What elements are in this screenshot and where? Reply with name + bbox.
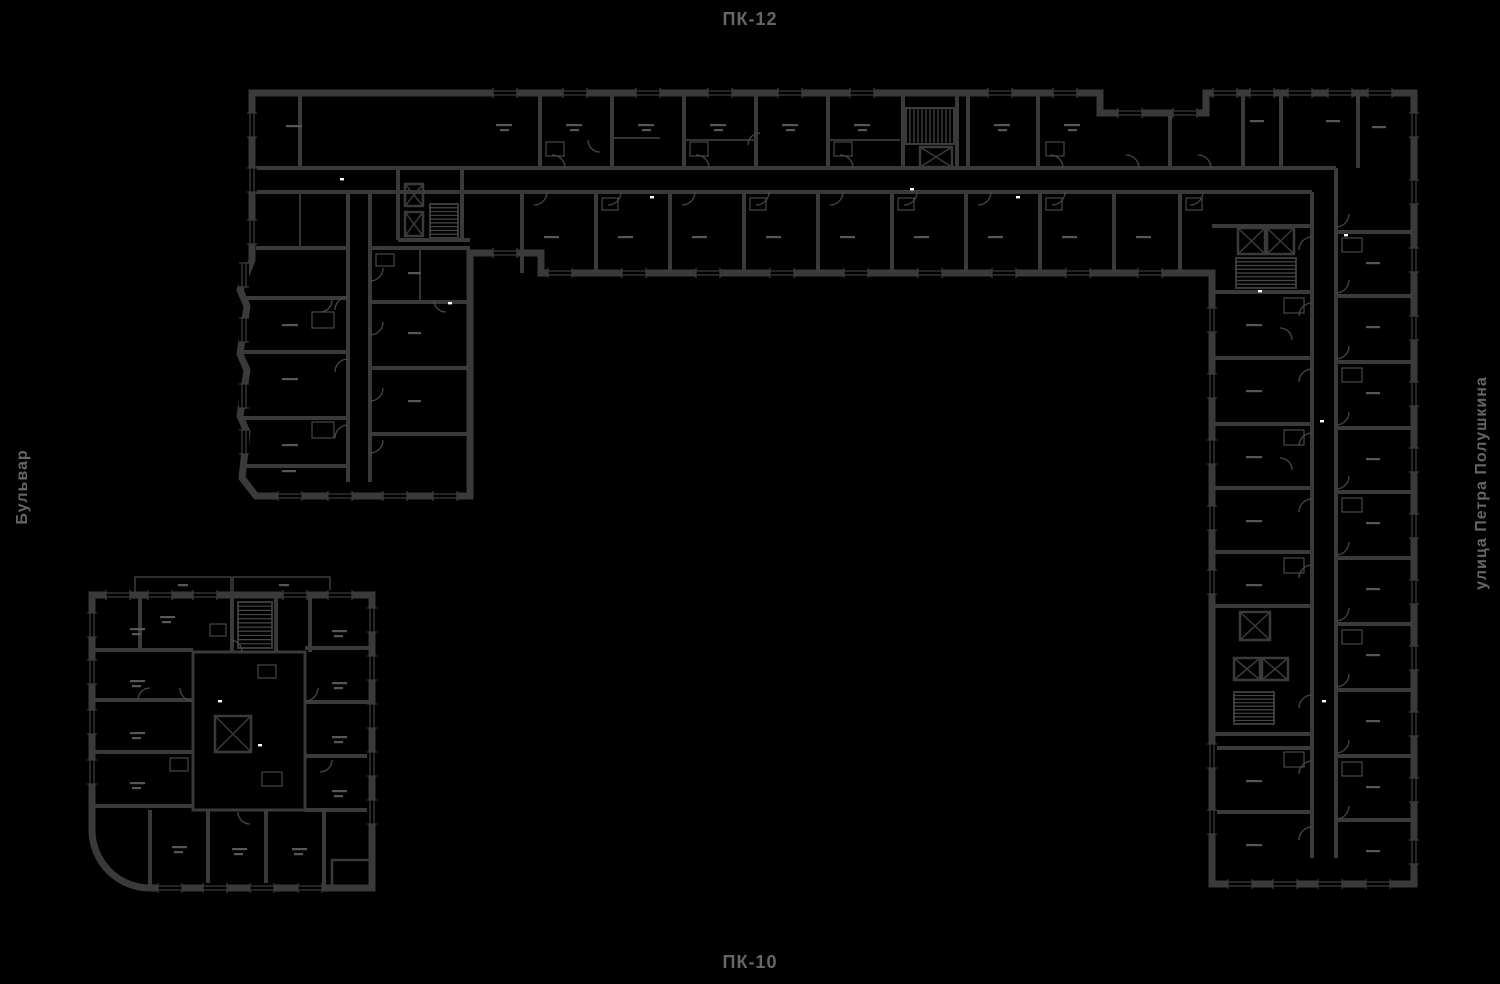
- floor-plan-page: { "labels": { "top": "ПК-12", "bottom": …: [0, 0, 1500, 984]
- label-boulevard: Бульвар: [14, 449, 32, 524]
- label-street-name: улица Петра Полушкина: [1473, 376, 1491, 590]
- floor-plan: ПК-12 ПК-10 Бульвар улица Петра Полушкин…: [0, 0, 1500, 984]
- small-building-plan: [87, 577, 377, 893]
- label-pk-12: ПК-12: [0, 9, 1500, 30]
- main-building-plan: [239, 88, 1419, 889]
- label-pk-10: ПК-10: [0, 952, 1500, 973]
- floor-plan-svg: [0, 0, 1500, 984]
